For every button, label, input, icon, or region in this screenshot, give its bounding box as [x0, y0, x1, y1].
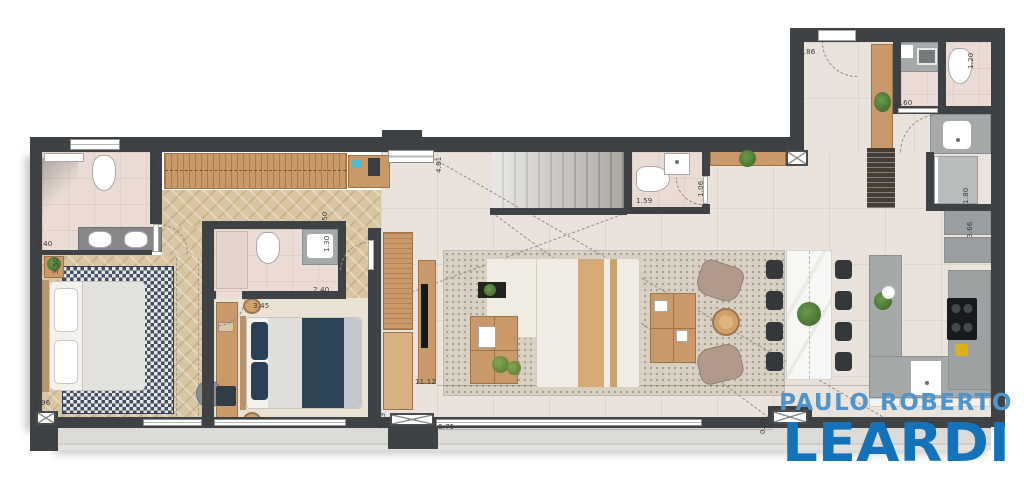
pillow [54, 340, 78, 384]
dimension-label: 1.80 [962, 188, 970, 204]
staircase [492, 152, 625, 208]
dimension-label: 11.12 [415, 378, 436, 386]
decor [654, 300, 668, 312]
dining-chair [835, 352, 852, 371]
dimension-label: 0.65 [759, 418, 767, 434]
sofa-throw [578, 259, 604, 387]
sofa-throw [610, 259, 617, 387]
pillow [54, 288, 78, 332]
shower-area [216, 231, 248, 289]
round-table-top [719, 315, 733, 329]
wall [42, 250, 152, 255]
window [70, 139, 120, 150]
shaft-icon [390, 413, 434, 426]
closet-rod [165, 170, 346, 171]
pillow-navy [251, 362, 268, 400]
wall [30, 152, 42, 427]
headboard [42, 280, 49, 392]
dining-chair [766, 260, 783, 279]
wall [938, 42, 946, 108]
duvet [82, 282, 145, 390]
sink [942, 120, 972, 150]
dimension-label: 3.50 [52, 258, 60, 274]
decor-blue [352, 160, 362, 168]
sideboard [383, 332, 413, 410]
projection-line [176, 258, 177, 416]
sheet [268, 318, 302, 408]
tv-icon [421, 284, 428, 348]
pillow-navy [251, 322, 268, 360]
dining-chair [835, 291, 852, 310]
entry-door [818, 30, 856, 41]
bedroom1-window [143, 419, 202, 426]
dimension-label: 1.59 [636, 197, 652, 205]
bath2-door-gap [216, 291, 242, 299]
kettle-icon [955, 344, 968, 356]
shower-area [42, 158, 78, 218]
faucet-icon [675, 160, 679, 164]
plant-icon [484, 284, 496, 296]
shower [934, 156, 978, 204]
bath1-shelf [44, 153, 84, 162]
toilet [92, 155, 116, 191]
dimension-label: 1.06 [697, 181, 705, 197]
wine-rack [867, 148, 895, 208]
dimension-label: 1.60 [896, 99, 912, 107]
printer [216, 386, 236, 406]
tall-wardrobe [383, 232, 413, 330]
dimension-line [437, 429, 773, 430]
wall [202, 221, 214, 418]
master-bed [42, 280, 146, 392]
dimension-label: 4.81 [435, 157, 443, 173]
wall [991, 28, 1005, 427]
wall [926, 152, 934, 208]
laundry-sink [917, 48, 937, 65]
terrace-sliding-door [436, 419, 702, 426]
faucet-icon [956, 138, 960, 142]
table-divider [471, 350, 517, 351]
sink [664, 153, 690, 175]
wall [790, 28, 804, 152]
pouf [507, 361, 521, 375]
sink [124, 231, 148, 248]
bedroom2-window [214, 419, 346, 426]
logo-line-1: PAULO ROBERTO [778, 392, 1014, 415]
decor-dark [368, 158, 380, 176]
dimension-label: 3.66 [966, 222, 974, 238]
cooktop-icon [947, 298, 977, 340]
wardrobe [164, 153, 347, 189]
dining-chair [766, 322, 783, 341]
flowers-icon [882, 286, 895, 299]
dimension-label: 6.75 [438, 423, 454, 431]
dimension-label: 2.40 [36, 240, 52, 248]
bed-foot [344, 318, 361, 408]
shaft-icon [36, 411, 56, 425]
dimension-label: 3.96 [34, 399, 50, 407]
dimension-label: 1.90 [150, 160, 158, 176]
brand-logo: PAULO ROBERTO LEARDI [778, 392, 1014, 472]
shaft-icon [786, 150, 808, 166]
dining-chair [766, 291, 783, 310]
wall [624, 152, 632, 214]
dimension-label: 2.40 [313, 286, 329, 294]
logo-line-2: LEARDI [778, 417, 1014, 470]
wall-column [382, 130, 422, 150]
plant-icon [874, 92, 891, 112]
window [388, 150, 434, 163]
dimension-label: 3.83 [379, 413, 387, 429]
freezer [944, 237, 991, 263]
toilet [256, 232, 280, 264]
stair-shading [492, 152, 625, 208]
sink [88, 231, 112, 248]
plant-icon [739, 150, 756, 167]
dining-chair [766, 352, 783, 371]
decor [676, 330, 688, 342]
floor-plan: 1.90 2.40 3.50 3.96 3.45 2.40 1.50 1.30 … [0, 0, 1024, 489]
pouf [492, 356, 509, 373]
wall [624, 207, 710, 214]
dimension-label: 1.20 [967, 53, 975, 69]
book [478, 326, 496, 348]
wall [490, 208, 627, 215]
blanket-navy [302, 318, 344, 408]
table-divider [651, 328, 695, 329]
wall [388, 425, 438, 449]
bath3-door [898, 108, 938, 113]
dimension-label: 1.50 [321, 212, 329, 228]
wall [926, 204, 991, 211]
dimension-label: 3.45 [253, 302, 269, 310]
faucet-icon [925, 381, 929, 385]
centerpiece-plant [797, 302, 821, 326]
shower-glass [935, 157, 938, 203]
bedroom2-bed [240, 316, 362, 410]
dining-chair [835, 322, 852, 341]
dimension-label: 1.86 [799, 48, 815, 56]
dimension-label: 1.30 [323, 236, 331, 252]
dining-chair [835, 260, 852, 279]
